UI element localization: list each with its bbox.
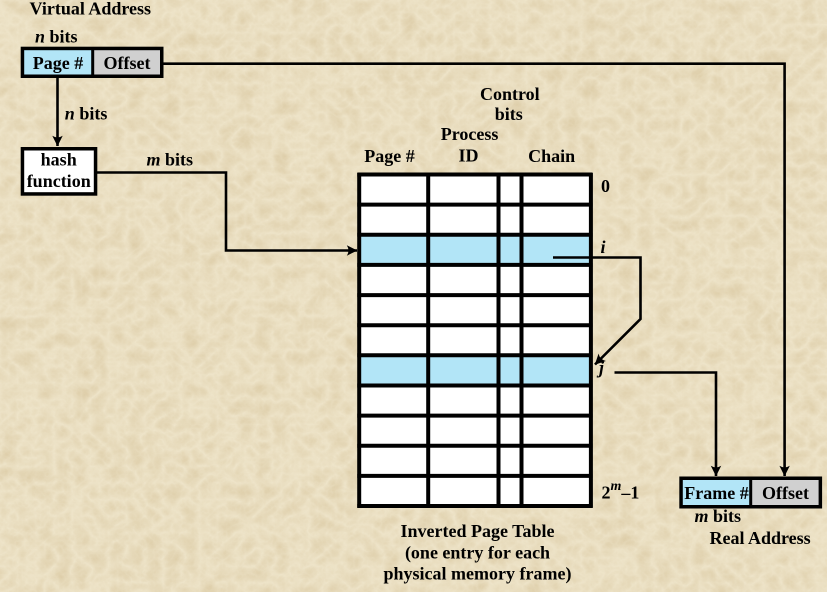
svg-text:Real Address: Real Address [710, 528, 811, 548]
svg-text:m bits: m bits [695, 506, 742, 526]
svg-text:Control: Control [480, 84, 540, 104]
svg-text:function: function [27, 171, 91, 191]
svg-text:n bits: n bits [35, 27, 78, 47]
svg-text:Offset: Offset [762, 483, 809, 503]
svg-text:Offset: Offset [104, 53, 151, 73]
svg-text:0: 0 [601, 176, 610, 196]
svg-text:Frame #: Frame # [684, 483, 748, 503]
svg-text:2m–1: 2m–1 [602, 479, 640, 503]
svg-text:(one entry for each: (one entry for each [405, 542, 550, 563]
svg-text:physical memory frame): physical memory frame) [384, 564, 572, 585]
svg-text:hash: hash [41, 149, 77, 169]
svg-text:Virtual Address: Virtual Address [30, 0, 152, 18]
svg-text:Process: Process [441, 124, 499, 144]
svg-text:Chain: Chain [528, 146, 575, 166]
svg-text:Page #: Page # [33, 53, 83, 73]
svg-text:i: i [601, 237, 606, 257]
svg-text:m bits: m bits [147, 150, 194, 170]
svg-text:bits: bits [495, 104, 523, 124]
svg-text:n bits: n bits [65, 104, 108, 124]
svg-text:ID: ID [458, 146, 478, 166]
svg-text:Page #: Page # [364, 146, 414, 166]
svg-text:Inverted Page Table: Inverted Page Table [400, 521, 554, 541]
